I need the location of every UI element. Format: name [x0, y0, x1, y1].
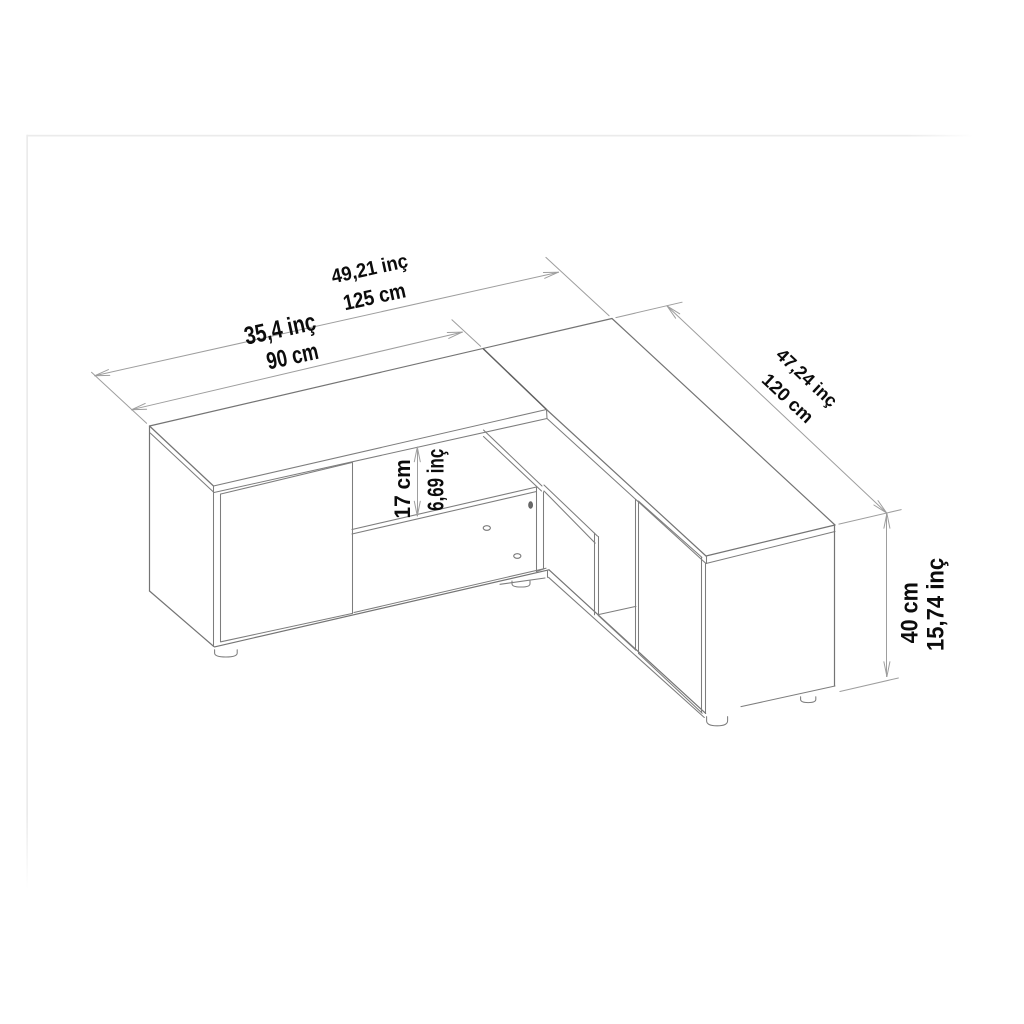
svg-text:40 cm: 40 cm — [895, 582, 923, 643]
svg-text:6,69 inç: 6,69 inç — [423, 449, 449, 511]
svg-text:15,74 inç: 15,74 inç — [921, 558, 948, 651]
svg-text:17 cm: 17 cm — [389, 459, 415, 518]
